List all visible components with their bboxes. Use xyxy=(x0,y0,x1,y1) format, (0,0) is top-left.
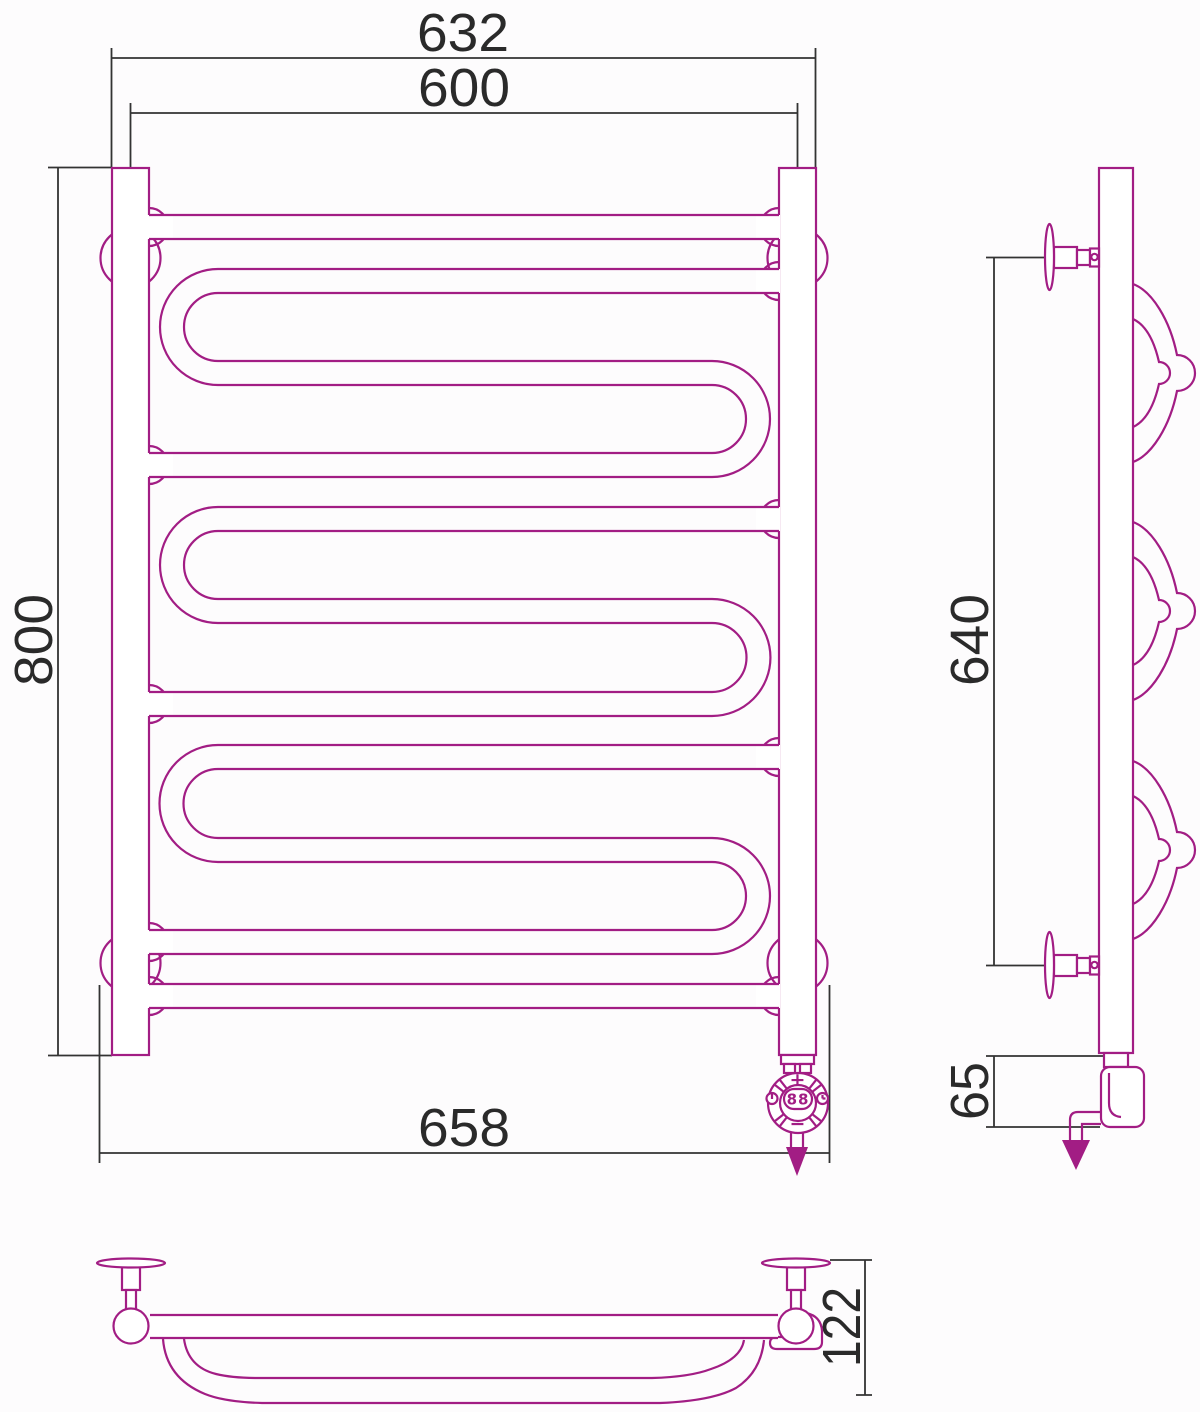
ball-joint xyxy=(114,1309,149,1344)
dimension-width-centers: 600 xyxy=(130,58,798,168)
towel-rail-drawing: 632 600 800 658 xyxy=(0,0,1200,1412)
serpentine-coil-3 xyxy=(149,745,779,954)
dim-front-width-centers-label: 600 xyxy=(418,58,510,118)
heater-connector xyxy=(781,1055,814,1064)
plan-view xyxy=(97,1259,830,1404)
main-tube-interior xyxy=(150,1316,778,1337)
bracket-flange-disc-bottom xyxy=(1045,932,1054,998)
serpentine-plan xyxy=(163,1339,764,1403)
heating-element-side xyxy=(1062,1053,1144,1170)
bracket-stem-wide xyxy=(1054,955,1077,976)
bracket-flange-plan xyxy=(97,1259,165,1268)
dimension-heater-height: 65 xyxy=(940,1056,1103,1127)
ball-joint xyxy=(779,1309,814,1344)
serpentine-coil-2 xyxy=(149,507,779,716)
power-cable-front xyxy=(786,1133,808,1176)
front-view: 88 + − xyxy=(101,168,829,1176)
post-side-profile xyxy=(1099,168,1133,1053)
bracket-flange-disc-top xyxy=(1045,224,1054,290)
dim-front-width-brackets-label: 658 xyxy=(418,1098,510,1158)
bracket-stem-wide xyxy=(787,1267,805,1290)
drawing-canvas: 632 600 800 658 xyxy=(0,0,1200,1412)
right-post xyxy=(779,168,816,1055)
heater-connector-side xyxy=(1104,1053,1128,1067)
bracket-stem-narrow xyxy=(791,1290,801,1310)
dimension-bracket-span: 640 xyxy=(940,257,1046,966)
timer-clock-icon xyxy=(817,1093,828,1104)
dim-side-heater-height-label: 65 xyxy=(940,1062,1000,1120)
cable-arrow-side xyxy=(1062,1140,1090,1170)
power-icon xyxy=(767,1093,778,1104)
left-post xyxy=(112,168,149,1055)
bracket-stem-narrow xyxy=(1077,958,1090,973)
coil-profile-chevrons xyxy=(1133,284,1195,939)
bracket-flange-plan xyxy=(762,1259,830,1268)
top-rail xyxy=(149,215,779,239)
dimension-height: 800 xyxy=(4,167,112,1056)
dim-front-width-outer-label: 632 xyxy=(417,3,509,63)
dim-side-bracket-span-label: 640 xyxy=(940,594,1000,686)
bracket-stem-wide xyxy=(122,1267,140,1290)
heater-box-side xyxy=(1101,1067,1144,1127)
bracket-stem-narrow xyxy=(1077,250,1090,265)
power-cable-side xyxy=(1062,1112,1101,1170)
dimension-width-brackets: 658 xyxy=(99,985,830,1163)
side-view xyxy=(1045,168,1195,1170)
bracket-pin xyxy=(1091,254,1097,260)
wall-bracket-side-top xyxy=(1045,224,1099,290)
plus-button-label: + xyxy=(790,1069,806,1091)
bottom-rail xyxy=(149,984,779,1008)
heating-control-unit: 88 + − xyxy=(767,1055,829,1176)
dim-front-height-label: 800 xyxy=(4,594,64,686)
minus-button-label: − xyxy=(790,1113,806,1135)
bracket-stem-narrow xyxy=(126,1290,136,1310)
serpentine-coil-1 xyxy=(149,269,779,477)
bracket-stem-wide xyxy=(1054,247,1077,268)
junction-bulges xyxy=(147,208,780,1015)
wall-bracket-side-bottom xyxy=(1045,932,1099,998)
cable-arrow-front xyxy=(786,1147,808,1176)
bracket-pin xyxy=(1091,962,1097,968)
temperature-display-value: 88 xyxy=(787,1091,810,1109)
